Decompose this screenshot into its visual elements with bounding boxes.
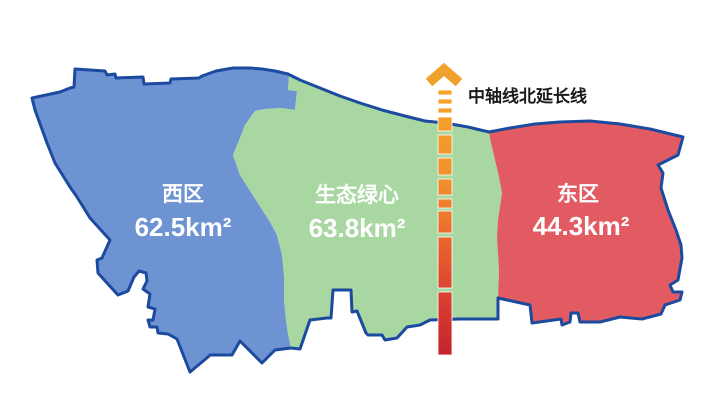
axis-dash	[438, 108, 452, 113]
axis-label: 中轴线北延长线	[468, 86, 587, 106]
axis-dash	[438, 211, 452, 233]
region-green-heart-labels: 生态绿心 63.8km²	[309, 183, 406, 243]
axis-dash	[438, 158, 452, 175]
axis-dash	[438, 199, 452, 208]
axis-dash	[438, 90, 452, 95]
axis-dash	[438, 179, 452, 195]
region-west-name-label: 西区	[162, 183, 204, 206]
region-west-area-label: 62.5km²	[135, 212, 232, 242]
axis-dash	[438, 117, 452, 131]
district-map-figure: 中轴线北延长线 西区 62.5km² 生态绿心 63.8km² 东区 44.3k…	[0, 0, 718, 407]
axis-dash	[438, 237, 452, 288]
region-green-heart-name-label: 生态绿心	[315, 183, 399, 207]
axis-dash	[438, 292, 452, 355]
axis-dash	[438, 99, 452, 104]
axis-arrow-icon	[429, 70, 459, 83]
region-green-heart-area-label: 63.8km²	[309, 213, 406, 243]
axis-dash	[438, 135, 452, 154]
axis-dashed-segments	[438, 90, 452, 355]
region-east-name-label: 东区	[557, 182, 599, 206]
district-map-canvas: 中轴线北延长线 西区 62.5km² 生态绿心 63.8km² 东区 44.3k…	[0, 0, 718, 407]
region-east-area-label: 44.3km²	[533, 211, 630, 241]
